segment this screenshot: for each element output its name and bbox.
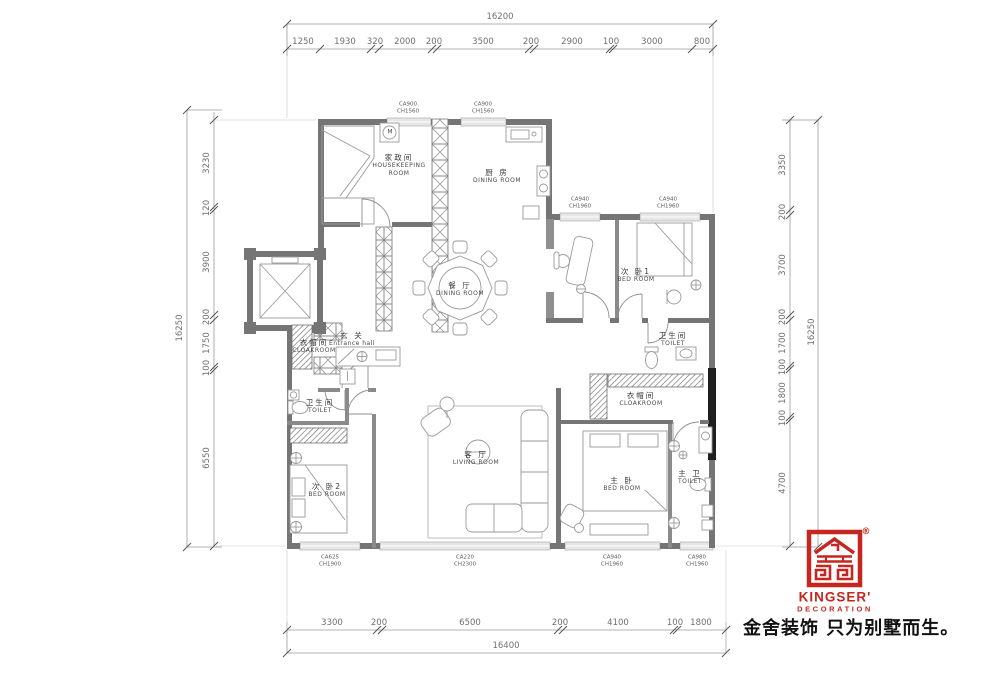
elevator [244,248,326,334]
kingser-logo-icon [809,532,860,585]
dim-right-seg-5: 100 [778,359,788,375]
dim-top-seg-5: 3500 [472,37,494,47]
dim-bottom-seg-0: 3300 [321,618,343,628]
dim-right-seg-8: 4700 [778,472,788,494]
floor-plan-drawing [0,0,1000,673]
washing-machine-label: M [387,129,392,136]
dim-right-seg-2: 3700 [778,254,788,276]
dim-right-seg-7: 100 [778,410,788,426]
room-label-bedroom1: 次 卧1 BED ROOM [617,268,654,284]
dim-right-seg-6: 1800 [778,382,788,404]
brand-name: KINGSER' [799,590,872,605]
dim-top-seg-0: 1250 [292,37,314,47]
dim-right-seg-4: 1700 [778,332,788,354]
room-label-cloakroom-right: 衣帽间 CLOAKROOM [619,392,662,408]
window-label-t3: CA940CH1960 [569,197,591,210]
bedroom1-furniture [637,223,701,304]
dim-left-seg-4: 1750 [202,332,212,354]
dim-left-seg-6: 6550 [202,447,212,469]
room-label-bedroom2: 次 卧2 BED ROOM [308,483,345,499]
window-label-b4: CA980CH1960 [686,555,708,568]
dim-top-seg-1: 1930 [334,37,356,47]
dim-top-seg-9: 3000 [641,37,663,47]
dim-top-seg-2: 320 [367,37,383,47]
toilet1-fixtures [645,347,696,369]
dim-bottom-total: 16400 [492,641,519,651]
brand-subtitle: DECORATION [797,605,873,614]
window-label-t4: CA940CH1960 [657,197,679,210]
dim-right-seg-0: 3350 [778,154,788,176]
dim-top-seg-7: 2900 [561,37,583,47]
brand-slogan: 金舍装饰 只为别墅而生。 [743,614,959,640]
room-label-entrance: 玄 关 Entrance hall [329,332,375,348]
dim-bottom-seg-2: 6500 [459,618,481,628]
window-label-b1: CA625CH1900 [319,555,341,568]
dim-top-seg-3: 2000 [394,37,416,47]
living-furniture [419,397,548,538]
dim-left-seg-0: 3230 [202,152,212,174]
room-label-kitchen: 厨 房 DINING ROOM [473,169,521,185]
registered-mark: ® [862,527,871,537]
dim-right-seg-3: 200 [778,309,788,325]
room-label-master-toilet: 主 卫 TOILET [678,470,702,486]
room-label-living: 客 厅 LIVING ROOM [453,451,499,467]
dim-bottom-seg-3: 200 [552,618,568,628]
dim-left-seg-3: 200 [202,309,212,325]
dim-top-seg-8: 100 [603,37,619,47]
window-label-b3: CA940CH1960 [601,555,623,568]
dim-top-seg-4: 200 [426,37,442,47]
dim-top-seg-6: 200 [523,37,539,47]
dim-bottom-seg-1: 200 [371,618,387,628]
dim-left-seg-1: 120 [202,200,212,216]
room-label-master-bedroom: 主 卧 BED ROOM [603,477,640,493]
dim-left-total: 16250 [175,314,185,341]
room-label-toilet1: 卫生间 TOILET [659,332,688,348]
dim-left-seg-2: 3900 [202,251,212,273]
dim-bottom-seg-4: 4100 [607,618,629,628]
window-label-b2: CA220CH2300 [454,555,476,568]
dim-left-seg-5: 100 [202,360,212,376]
dim-top-total: 16200 [486,12,513,22]
window-label-t2: CA900CH1560 [472,102,494,115]
dim-right-total: 16250 [807,318,817,345]
room-label-housekeeping: 家政间 HOUSEKEEPING ROOM [372,154,425,178]
study-furniture [554,236,594,294]
room-label-dining: 餐 厅 DINING ROOM [436,282,484,298]
dim-top-seg-10: 800 [694,37,710,47]
room-label-cloakroom-left: 衣帽间 CLOAKROOM [292,339,335,355]
dim-right-seg-1: 200 [778,204,788,220]
window-label-t1: CA900CH1560 [397,102,419,115]
floor-plan-sheet: 16200 1250 1930 320 2000 200 3500 200 29… [0,0,1000,673]
dim-bottom-seg-5: 100 [667,618,683,628]
dim-bottom-seg-6: 1800 [690,618,712,628]
room-label-toilet2: 卫生间 TOILET [306,399,335,415]
